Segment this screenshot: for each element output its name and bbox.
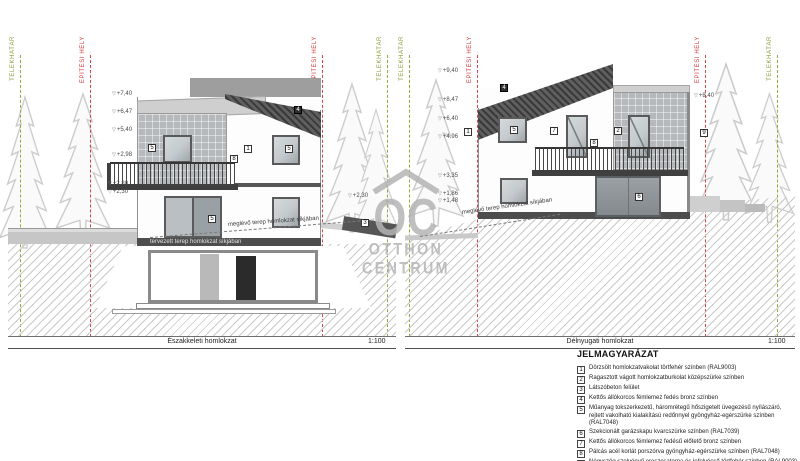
legend-item-number: 7	[577, 440, 585, 448]
window-lower-left	[500, 178, 528, 204]
elevation-marker: +8,47	[438, 97, 458, 103]
elevation-marker: +6,40	[438, 116, 458, 122]
elevation-marker: +5,40	[112, 127, 132, 133]
legend-item: 6 Szekcionált garázskapu kvarcszürke szí…	[577, 429, 798, 438]
balcony-railing	[535, 147, 684, 170]
legend-item-number: 4	[577, 396, 585, 404]
plinth-band: tervezett terep homlokzat síkjában	[137, 238, 321, 246]
title-rule-top	[8, 336, 396, 337]
building-zone-label: ÉPÍTÉSI HELY	[695, 36, 701, 83]
garage-door	[595, 176, 661, 217]
downpipe	[687, 92, 690, 212]
legend-item: 5 Műanyag tokszerkezetű, háromrétegű hős…	[577, 405, 798, 428]
elevation-marker: +2,30	[108, 189, 128, 195]
material-callout: 1	[464, 128, 472, 136]
legend-item-number: 1	[577, 366, 585, 374]
material-callout: 6	[635, 193, 643, 201]
garage-door-divider	[628, 178, 629, 215]
material-callout: 5	[208, 215, 216, 223]
elevation-marker: +7,40	[112, 91, 132, 97]
foundation-base	[112, 309, 336, 314]
balcony-slab	[532, 170, 688, 176]
legend-item-number: 5	[577, 406, 585, 414]
legend-item: 4 Kettős állókorcos fémlemez fedés bronz…	[577, 395, 798, 404]
legend-item-text: Látszóbeton felület	[589, 385, 639, 394]
legend-item-text: Ragasztott vágott homlokzatburkolat közé…	[589, 375, 744, 384]
basement-section	[148, 250, 318, 303]
drawing-sheet: TELEKHATÁR ÉPÍTÉSI HELY ÉPÍTÉSI HELY TEL…	[0, 0, 800, 461]
legend-item: 1 Dörzsölt homlokzatvakolat törtfehér sz…	[577, 365, 798, 374]
otthon-centrum-watermark: OC OTTHON CENTRUM	[350, 168, 462, 278]
material-callout: 9	[700, 129, 708, 137]
terrace-step	[690, 196, 720, 212]
panel-title: Délnyugati homlokzat	[405, 338, 795, 345]
material-callout: 8	[230, 155, 238, 163]
legend-item: 8 Pálcás acél korlát porszórva gyöngyház…	[577, 449, 798, 458]
pine-tree	[52, 92, 114, 240]
legend-item-number: 8	[577, 450, 585, 458]
legend-item-text: Pálcás acél korlát porszórva gyöngyház-e…	[589, 449, 780, 458]
terrace-step	[745, 204, 765, 212]
legend-item-text: Műanyag tokszerkezetű, háromrétegű hőszi…	[589, 405, 798, 428]
material-callout: 2	[614, 127, 622, 135]
material-callout: 5	[510, 126, 518, 134]
elevation-marker: +2,80	[108, 181, 128, 187]
material-callout: 5	[148, 144, 156, 152]
planned-terrain-note: tervezett terep homlokzat síkjában	[150, 238, 241, 246]
legend-item-number: 6	[577, 430, 585, 438]
balcony-railing	[110, 162, 235, 184]
panel-title: Északkeleti homlokzat	[8, 338, 396, 345]
title-rule-bottom	[8, 348, 396, 349]
window-upper-left	[163, 135, 192, 163]
building-zone-label: ÉPÍTÉSI HELY	[80, 36, 86, 83]
basement-door-light	[200, 254, 219, 300]
terrain-band-left	[8, 228, 137, 244]
legend-item-number: 3	[577, 386, 585, 394]
elevation-marker: +8,40	[694, 93, 714, 99]
legend-item: 7 Kettős állókorcos fémlemez fedésű előt…	[577, 439, 798, 448]
terrace-step	[720, 200, 745, 212]
watermark-name-line2: CENTRUM	[353, 258, 459, 279]
material-callout: 4	[500, 84, 508, 92]
material-callout: 7	[550, 127, 558, 135]
legend-item: 3 Látszóbeton felület	[577, 385, 798, 394]
legend-title: JELMAGYARÁZAT	[577, 349, 798, 359]
rear-wing-band	[190, 78, 321, 97]
panel-scale: 1:100	[768, 338, 786, 345]
plot-boundary-label: TELEKHATÁR	[767, 36, 773, 81]
elevation-marker: +6,47	[112, 109, 132, 115]
building-zone-label: ÉPÍTÉSI HELY	[467, 36, 473, 83]
building-zone-label: ÉPÍTÉSI HELY	[312, 36, 318, 83]
title-rule-top	[405, 336, 795, 337]
legend-item-text: Kettős állókorcos fémlemez fedés bronz s…	[589, 395, 718, 404]
plot-boundary-label: TELEKHATÁR	[399, 36, 405, 81]
elevation-marker: +9,40	[438, 68, 458, 74]
plot-boundary-label: TELEKHATÁR	[377, 36, 383, 81]
material-callout: 5	[285, 145, 293, 153]
legend: JELMAGYARÁZAT 1 Dörzsölt homlokzatvakola…	[577, 349, 798, 461]
elevation-marker: +4,96	[438, 134, 458, 140]
material-callout: 1	[244, 145, 252, 153]
pine-tree	[0, 95, 54, 250]
legend-item-number: 2	[577, 376, 585, 384]
legend-item-text: Szekcionált garázskapu kvarcszürke színb…	[589, 429, 739, 438]
watermark-name-line1: OTTHON	[353, 239, 459, 260]
legend-item-text: Kettős állókorcos fémlemez fedésű előtet…	[589, 439, 741, 448]
basement-door-dark	[236, 256, 256, 300]
legend-item-text: Dörzsölt homlokzatvakolat törtfehér szín…	[589, 365, 736, 374]
panel-scale: 1:100	[368, 338, 386, 345]
elevation-marker: +2,98	[112, 152, 132, 158]
floor-slab-line	[235, 183, 321, 187]
material-callout: 8	[590, 139, 598, 147]
plot-boundary-label: TELEKHATÁR	[10, 36, 16, 81]
material-callout: 4	[294, 106, 302, 114]
legend-item: 2 Ragasztott vágott homlokzatburkolat kö…	[577, 375, 798, 384]
watermark-monogram: OC	[354, 191, 457, 243]
